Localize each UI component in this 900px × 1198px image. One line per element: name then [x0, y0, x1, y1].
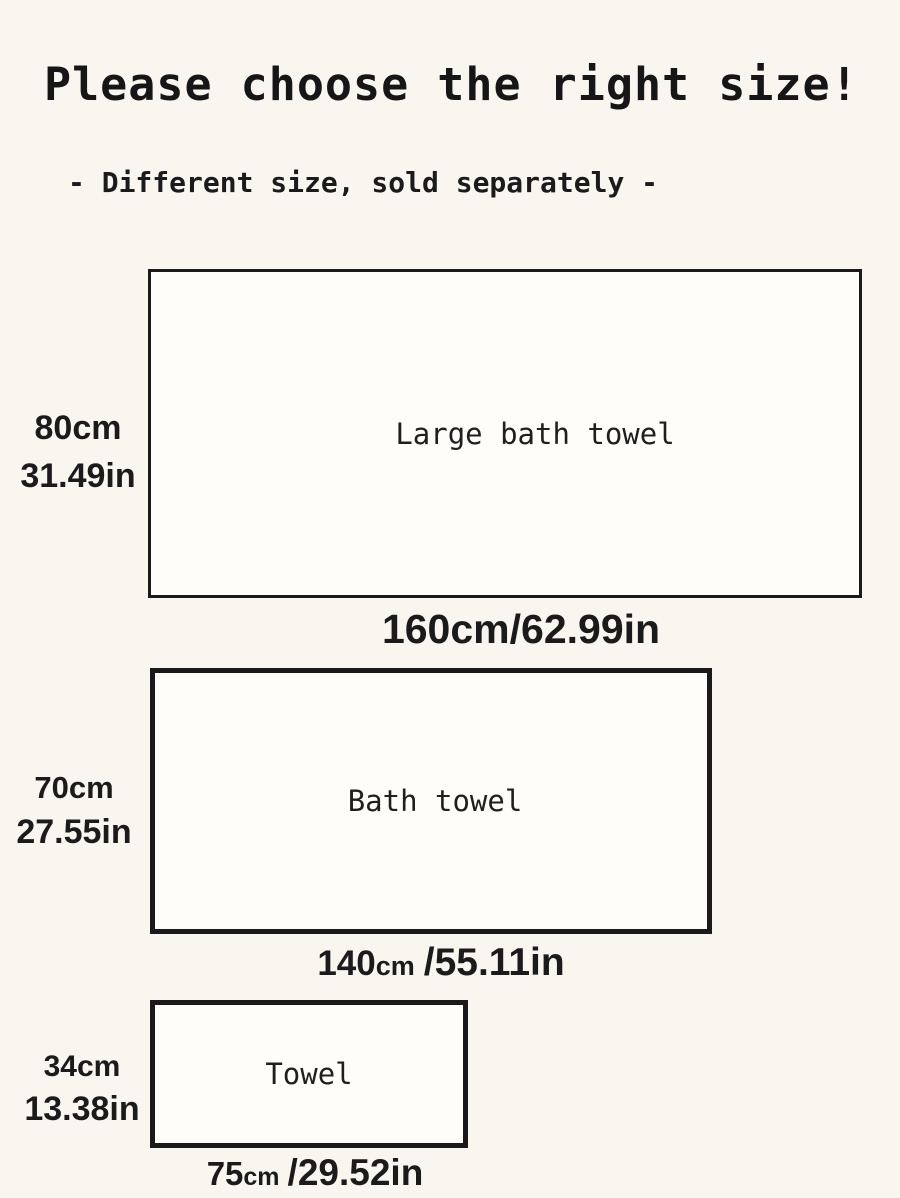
width-in-text: /62.99in	[510, 606, 660, 652]
height-in-text: 13.38in	[10, 1088, 154, 1130]
height-cm-text: 70cm	[2, 766, 146, 810]
towel-size-chart: Please choose the right size! - Differen…	[0, 0, 900, 1198]
bath-towel-height-label: 70cm 27.55in	[2, 766, 146, 854]
towel-height-label: 34cm 13.38in	[10, 1046, 154, 1130]
page-title: Please choose the right size!	[44, 58, 864, 111]
page-subtitle: - Different size, sold separately -	[68, 166, 768, 199]
height-in-text: 31.49in	[6, 452, 150, 500]
width-cm-unit-text: cm	[376, 951, 415, 981]
bath-towel-rect: Bath towel	[150, 668, 712, 934]
large-bath-towel-name-label: Large bath towel	[395, 417, 674, 451]
large-bath-towel-width-label: 160cm/62.99in	[164, 606, 878, 653]
height-in-text: 27.55in	[2, 810, 146, 854]
width-in-text: /29.52in	[288, 1152, 424, 1193]
large-bath-towel-rect: Large bath towel	[148, 269, 862, 598]
bath-towel-name-label: Bath towel	[348, 784, 523, 818]
towel-width-label: 75cm/29.52in	[156, 1152, 474, 1194]
width-cm-unit-text: cm	[450, 606, 509, 652]
height-cm-text: 34cm	[10, 1046, 154, 1088]
bath-towel-width-label: 140cm/55.11in	[160, 941, 722, 985]
width-cm-value-text: 160	[382, 606, 450, 652]
large-bath-towel-height-label: 80cm 31.49in	[6, 404, 150, 500]
towel-name-label: Towel	[265, 1057, 352, 1091]
height-cm-text: 80cm	[6, 404, 150, 452]
width-cm-value-text: 140	[317, 944, 375, 983]
width-cm-unit-text: cm	[243, 1163, 279, 1191]
width-in-text: /55.11in	[424, 941, 565, 984]
width-cm-value-text: 75	[207, 1155, 244, 1192]
towel-rect: Towel	[150, 1000, 468, 1148]
